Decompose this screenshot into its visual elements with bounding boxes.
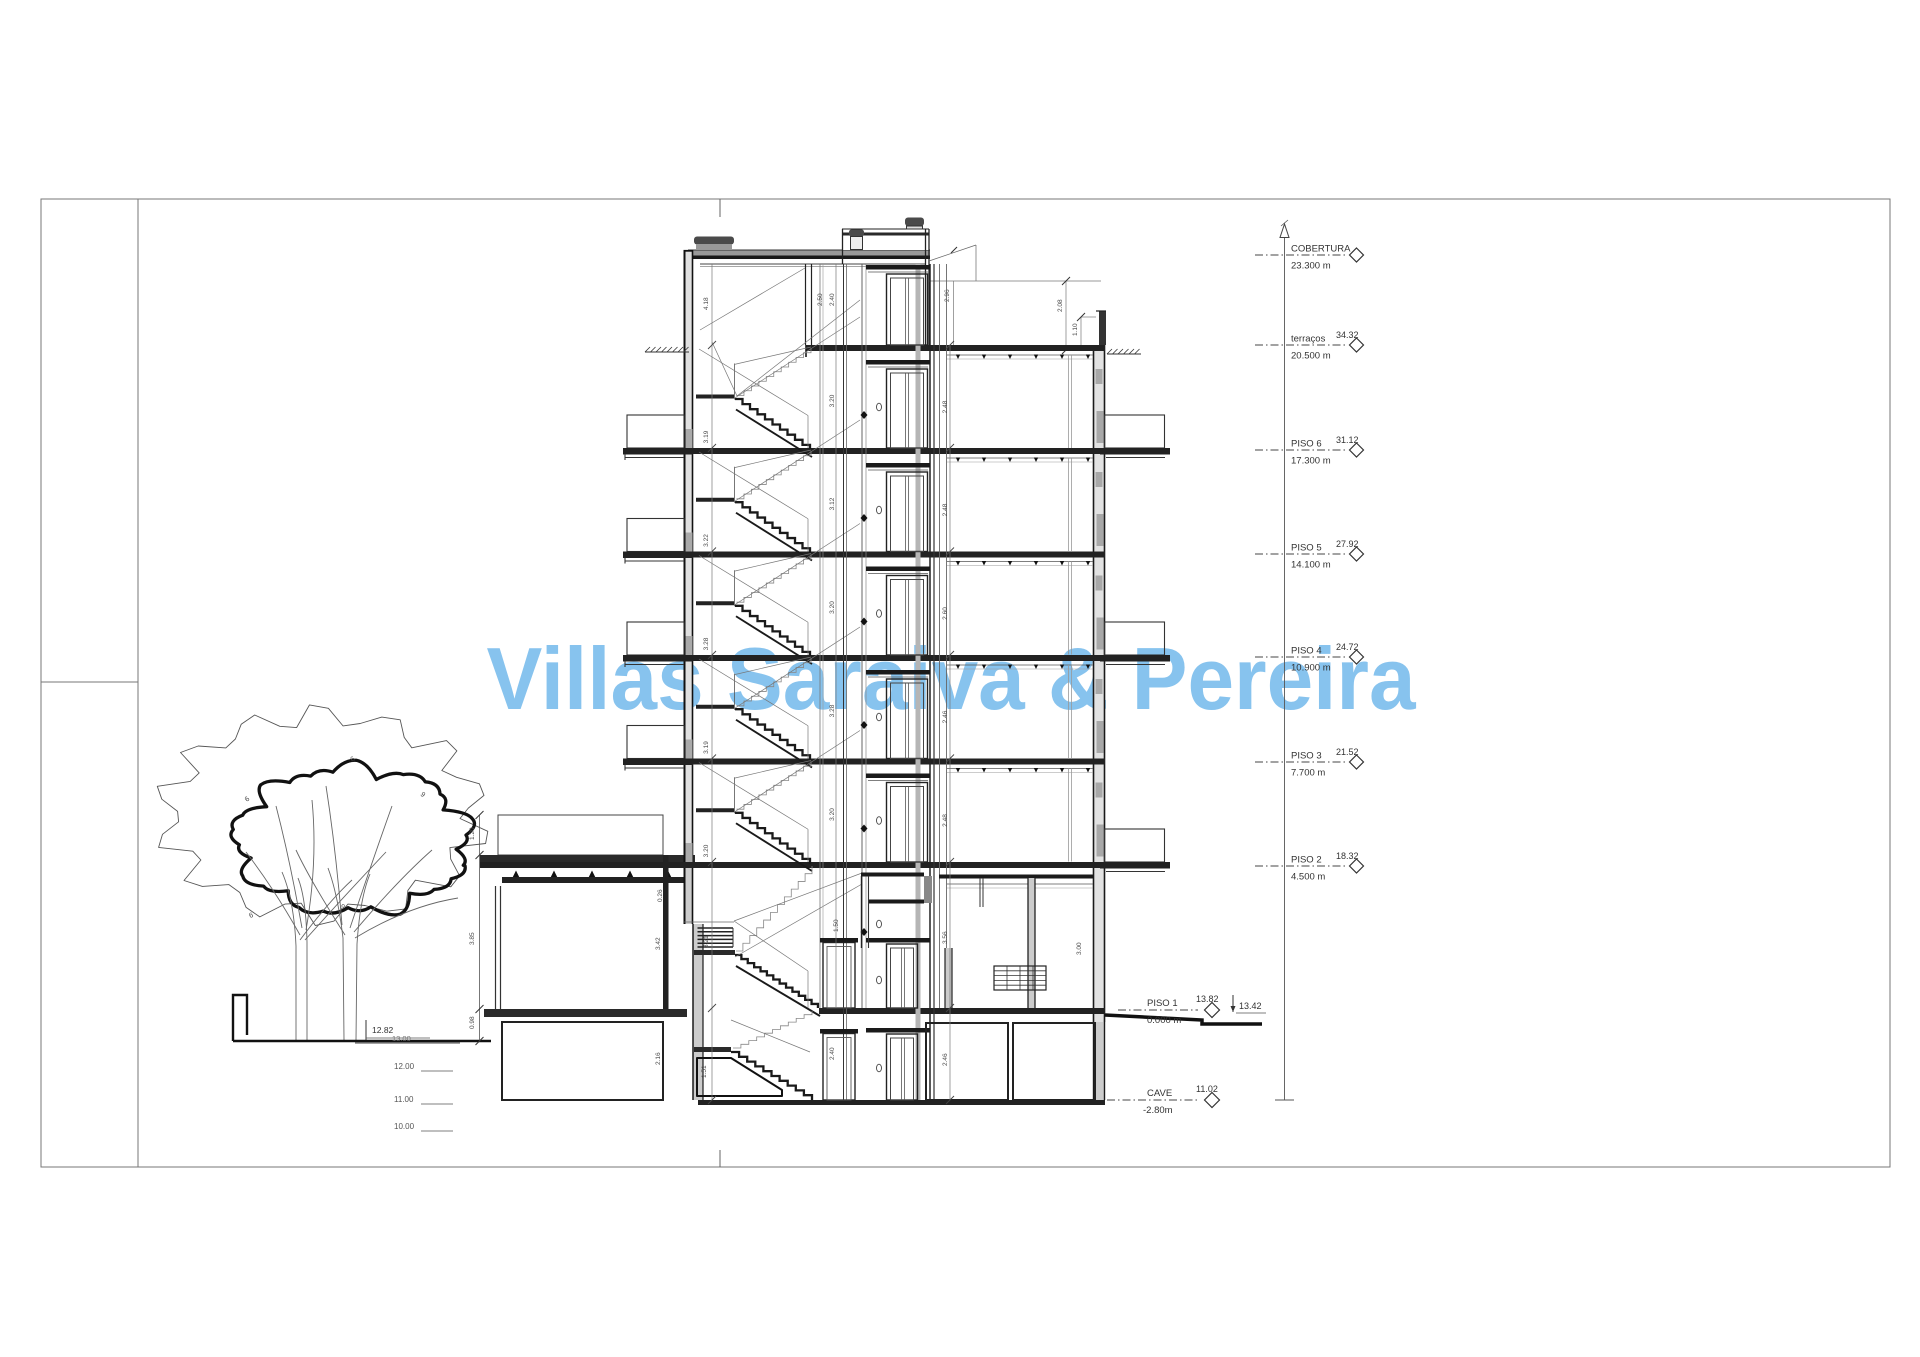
svg-text:CAVE: CAVE	[1147, 1088, 1172, 1099]
svg-text:2.48: 2.48	[942, 814, 949, 827]
svg-text:COBERTURA: COBERTURA	[1291, 244, 1351, 255]
svg-text:3.19: 3.19	[703, 741, 710, 754]
svg-text:3.28: 3.28	[829, 704, 836, 717]
svg-text:20.500 m: 20.500 m	[1291, 351, 1331, 362]
svg-text:2.16: 2.16	[655, 1052, 662, 1065]
svg-text:PISO 5: PISO 5	[1291, 543, 1322, 554]
svg-text:13.82: 13.82	[1196, 994, 1219, 1004]
svg-text:0.98: 0.98	[469, 1016, 476, 1029]
svg-text:3.19: 3.19	[703, 430, 710, 443]
svg-text:2.96: 2.96	[944, 289, 951, 302]
svg-text:14.100 m: 14.100 m	[1291, 560, 1331, 571]
svg-text:11.00: 11.00	[394, 1095, 414, 1104]
svg-text:2.46: 2.46	[942, 1053, 949, 1066]
svg-text:3.20: 3.20	[703, 844, 710, 857]
svg-text:2.60: 2.60	[942, 607, 949, 620]
svg-text:2.48: 2.48	[942, 400, 949, 413]
svg-text:2.46: 2.46	[942, 710, 949, 723]
svg-text:2.40: 2.40	[829, 1047, 836, 1060]
svg-text:0.000 m: 0.000 m	[1147, 1015, 1181, 1026]
svg-text:12.00: 12.00	[394, 1062, 415, 1071]
svg-text:9: 9	[419, 791, 427, 799]
svg-text:17.300 m: 17.300 m	[1291, 456, 1331, 467]
svg-text:2.40: 2.40	[829, 293, 836, 306]
svg-text:3.22: 3.22	[703, 534, 710, 547]
svg-text:10.900 m: 10.900 m	[1291, 663, 1331, 674]
svg-text:3.20: 3.20	[829, 394, 836, 407]
svg-text:3.21: 3.21	[703, 935, 710, 948]
svg-text:PISO 2: PISO 2	[1291, 855, 1322, 866]
svg-text:6: 6	[244, 796, 252, 804]
svg-text:1.50: 1.50	[833, 919, 840, 932]
svg-text:3.20: 3.20	[829, 601, 836, 614]
svg-text:4.500 m: 4.500 m	[1291, 872, 1325, 883]
svg-text:13.42: 13.42	[1239, 1001, 1262, 1011]
svg-text:-2.80m: -2.80m	[1143, 1105, 1173, 1116]
svg-text:0.26: 0.26	[657, 889, 664, 902]
svg-text:1.10: 1.10	[1072, 323, 1079, 336]
svg-text:3.00: 3.00	[1076, 942, 1083, 955]
svg-text:3.56: 3.56	[942, 931, 949, 944]
svg-text:PISO 6: PISO 6	[1291, 439, 1322, 450]
svg-text:23.300 m: 23.300 m	[1291, 261, 1331, 272]
svg-text:3.28: 3.28	[703, 637, 710, 650]
svg-text:13.00: 13.00	[392, 1034, 411, 1043]
svg-text:3.85: 3.85	[469, 932, 476, 945]
svg-text:3.12: 3.12	[829, 497, 836, 510]
svg-text:6: 6	[248, 912, 254, 920]
svg-text:Villas Saraiva & Pereira: Villas Saraiva & Pereira	[487, 629, 1417, 728]
svg-text:10.00: 10.00	[394, 1122, 415, 1131]
svg-text:12.82: 12.82	[372, 1025, 394, 1035]
svg-text:3.20: 3.20	[829, 808, 836, 821]
svg-text:PISO 3: PISO 3	[1291, 751, 1322, 762]
svg-text:3.42: 3.42	[655, 937, 662, 950]
svg-text:1.51: 1.51	[701, 1065, 708, 1078]
svg-text:2.08: 2.08	[1057, 299, 1064, 312]
svg-text:2.48: 2.48	[942, 503, 949, 516]
svg-text:4.18: 4.18	[703, 297, 710, 310]
svg-text:11.02: 11.02	[1196, 1084, 1218, 1094]
svg-text:PISO 4: PISO 4	[1291, 646, 1322, 657]
svg-text:1.20: 1.20	[469, 827, 476, 840]
svg-text:terraços: terraços	[1291, 334, 1326, 345]
svg-text:7.700 m: 7.700 m	[1291, 768, 1325, 779]
svg-text:2.50: 2.50	[817, 293, 824, 306]
svg-text:PISO 1: PISO 1	[1147, 998, 1178, 1009]
